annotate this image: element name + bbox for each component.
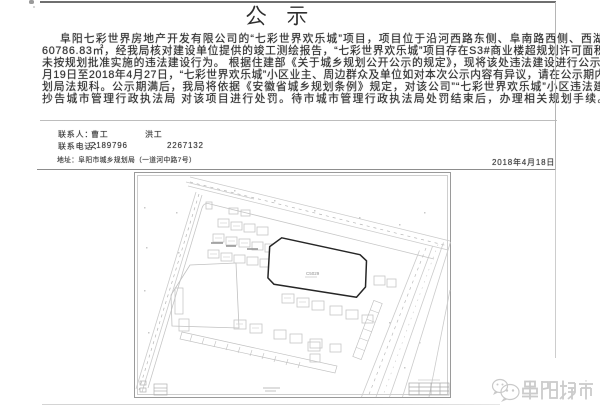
svg-text:C5029: C5029 xyxy=(306,271,320,276)
